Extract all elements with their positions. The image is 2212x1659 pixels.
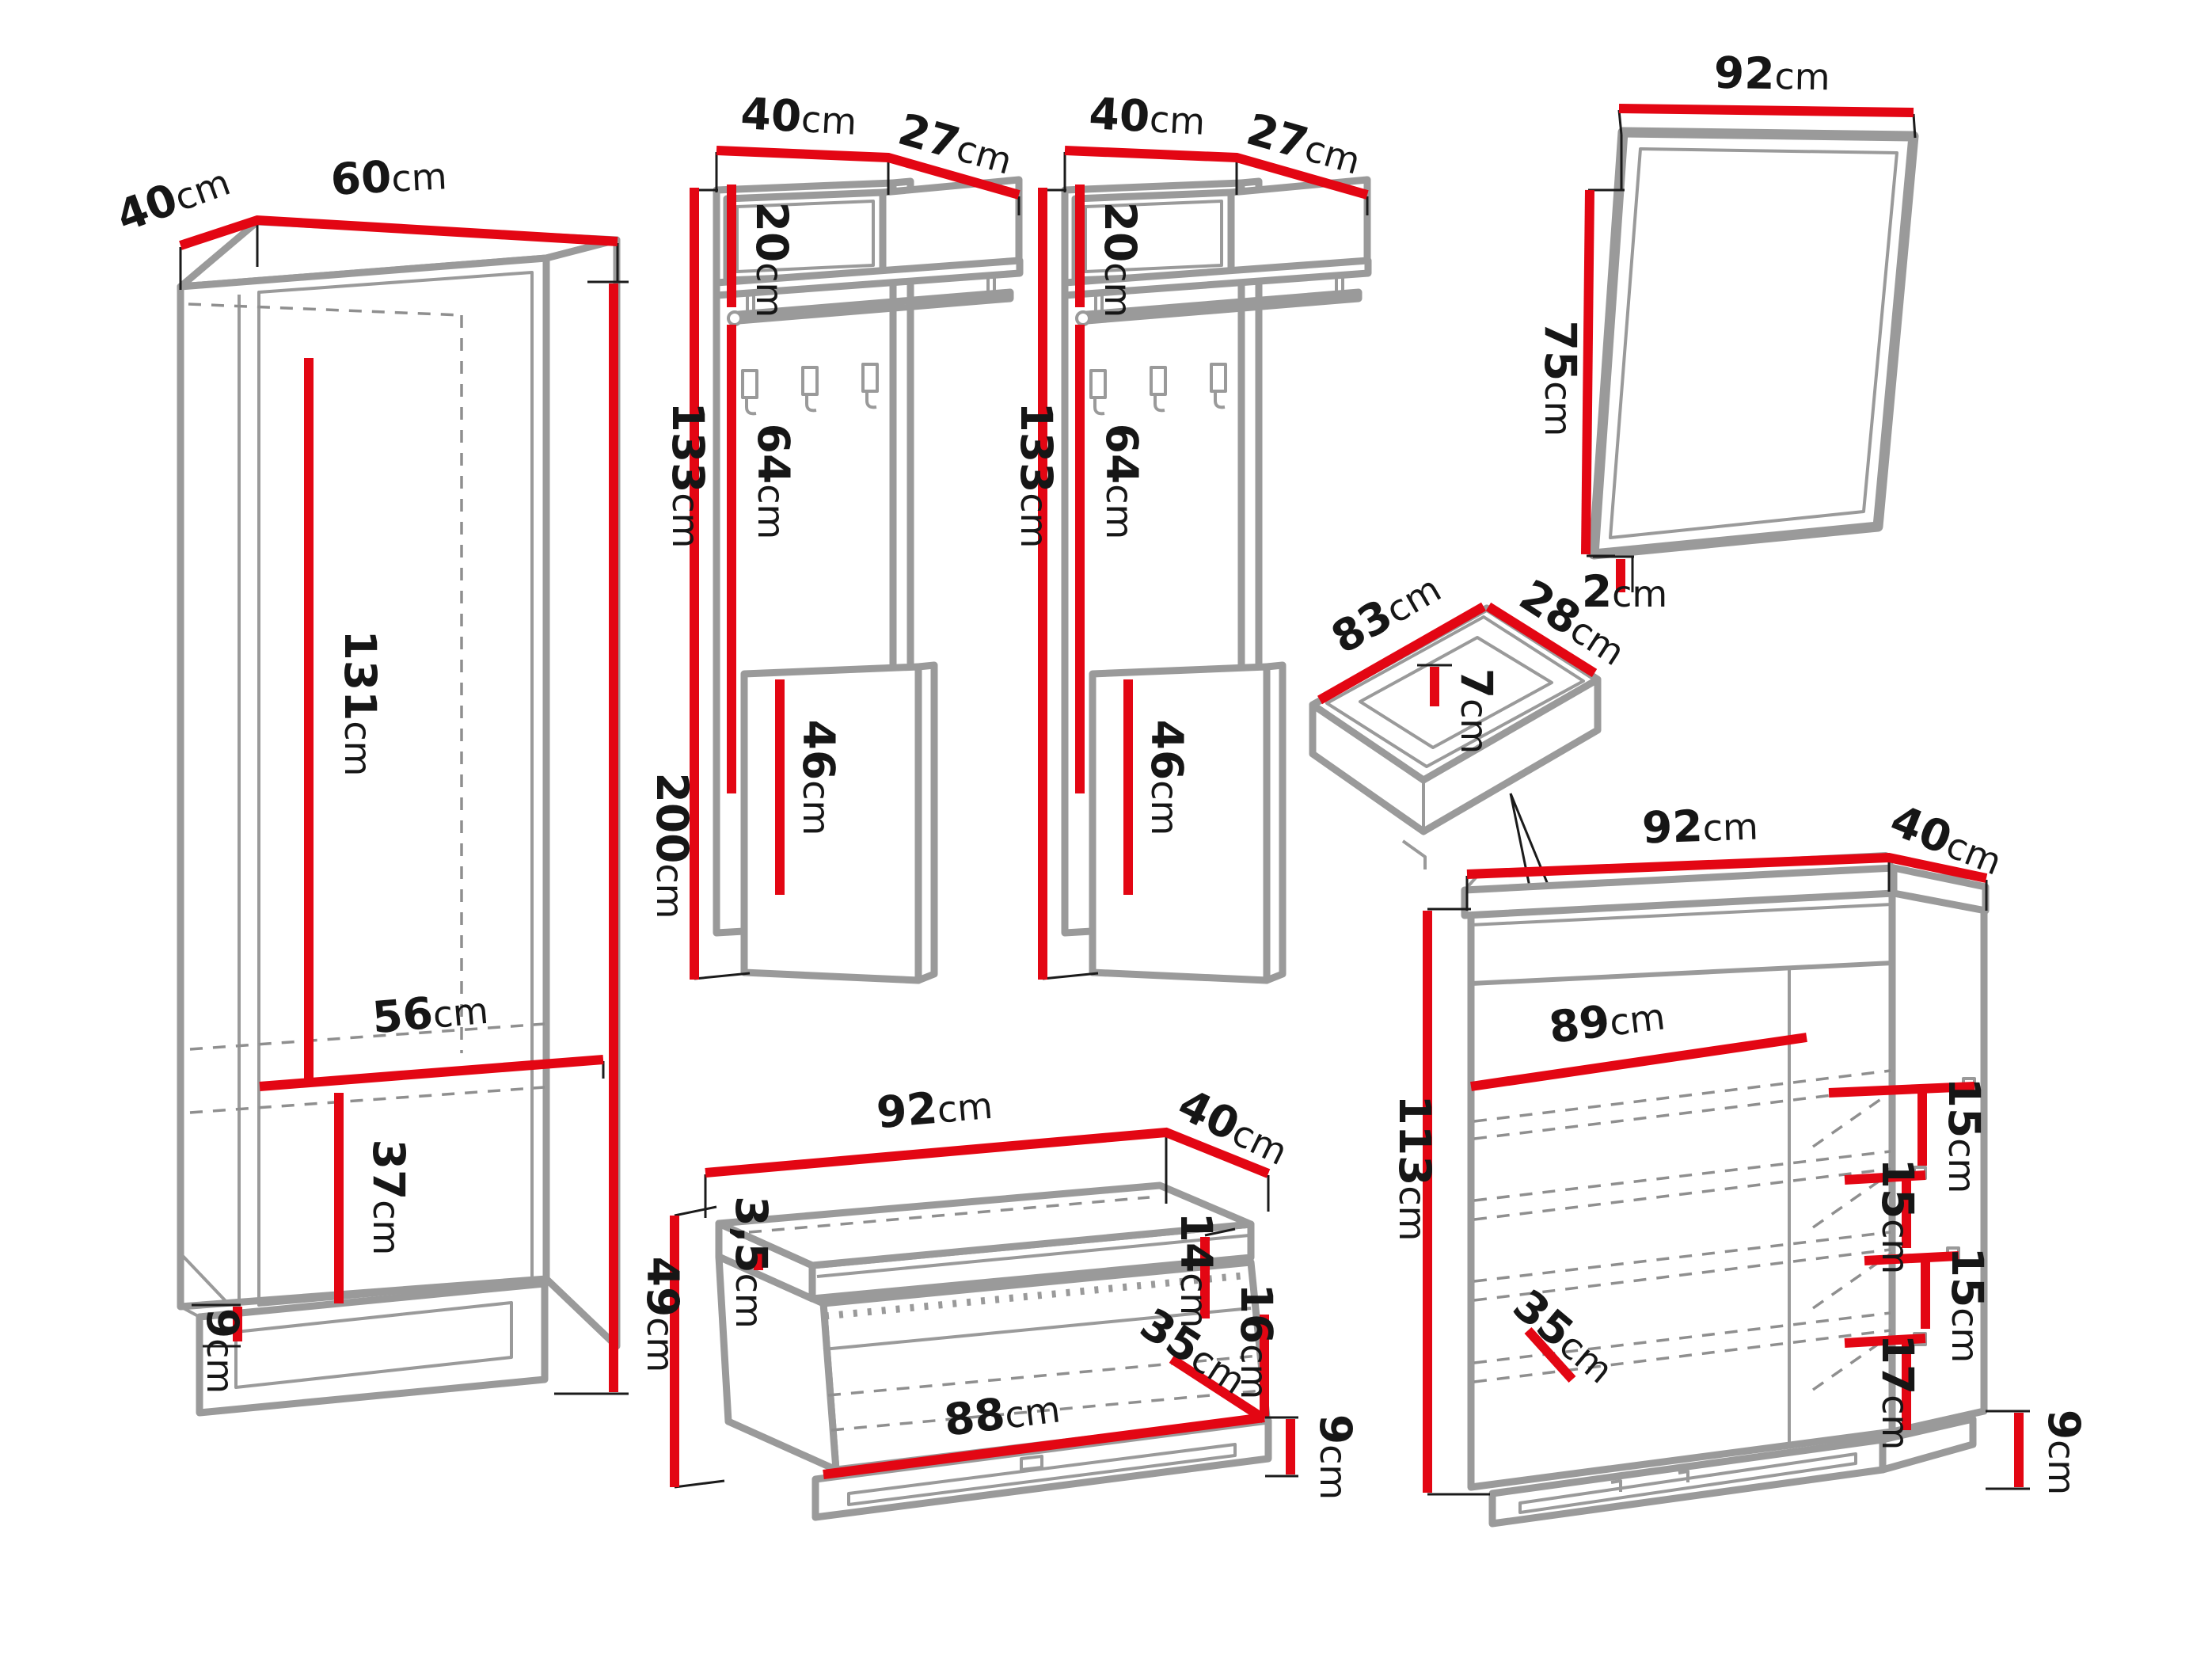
cabinet-shelf-gap-2-label: 15cm	[1872, 1159, 1923, 1275]
bench-height-label: 49cm	[637, 1257, 688, 1373]
shoe-cabinet: 92cm 40cm 113cm 89cm 15cm 15cm 15cm 17cm…	[1389, 794, 2089, 1524]
wardrobe-lower-compartment-label: 37cm	[363, 1140, 414, 1256]
wardrobe: 40cm 60cm 200cm 131cm 56cm 37cm 9cm	[110, 148, 697, 1413]
cabinet-plinth-label: 9cm	[2039, 1410, 2089, 1495]
mirror-depth-label: 2cm	[1582, 566, 1667, 617]
cabinet-shelf-gap-4-label: 17cm	[1872, 1334, 1923, 1451]
coat-panel-right	[1011, 88, 1368, 980]
wardrobe-plinth-label: 9cm	[197, 1308, 248, 1394]
mirror-height-label: 75cm	[1535, 321, 1586, 437]
cabinet-width-label: 92cm	[1641, 798, 1759, 853]
bench-width-label: 92cm	[875, 1078, 995, 1139]
drawer-height-label: 7cm	[1451, 668, 1502, 754]
drawer-notch	[1403, 841, 1425, 869]
mirror: 92cm 75cm 2cm	[1535, 48, 1915, 617]
wardrobe-side-face	[546, 240, 617, 1346]
bench-plinth-label: 9cm	[1310, 1414, 1361, 1500]
bench-seat-thickness-label: 3,5cm	[726, 1196, 777, 1329]
mirror-width-label: 92cm	[1713, 48, 1830, 101]
coat-panel-left	[663, 88, 1020, 980]
wardrobe-interior-height-label: 131cm	[335, 630, 386, 777]
wardrobe-front-face	[181, 258, 546, 1307]
furniture-dimensions-diagram: 40cm 27cm 133cm 20cm 64cm 46cm	[0, 0, 2212, 1659]
cabinet-height-label: 113cm	[1389, 1095, 1440, 1242]
bench: 92cm 40cm 49cm 3,5cm 14cm 16cm 35cm 88cm…	[637, 1078, 1361, 1517]
cabinet-shelf-gap-3-label: 15cm	[1942, 1247, 1993, 1364]
wardrobe-width-label: 60cm	[329, 148, 448, 205]
cabinet-shelf-gap-1-label: 15cm	[1939, 1078, 1990, 1194]
